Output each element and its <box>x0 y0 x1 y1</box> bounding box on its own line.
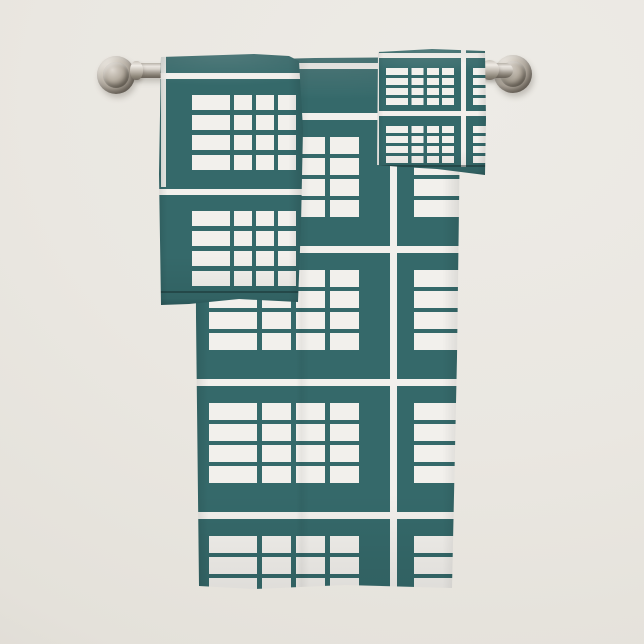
mount-dome <box>103 62 129 88</box>
washcloth <box>377 49 486 177</box>
washcloth-pattern <box>377 49 486 177</box>
hand-towel-pattern <box>159 54 303 306</box>
bathroom-wall-scene <box>0 0 644 644</box>
towel-bar-left-mount <box>97 56 135 94</box>
towel-bar-left-collar <box>130 61 143 80</box>
hand-towel <box>159 54 303 306</box>
hand-towel-edge-stripe <box>161 56 166 187</box>
